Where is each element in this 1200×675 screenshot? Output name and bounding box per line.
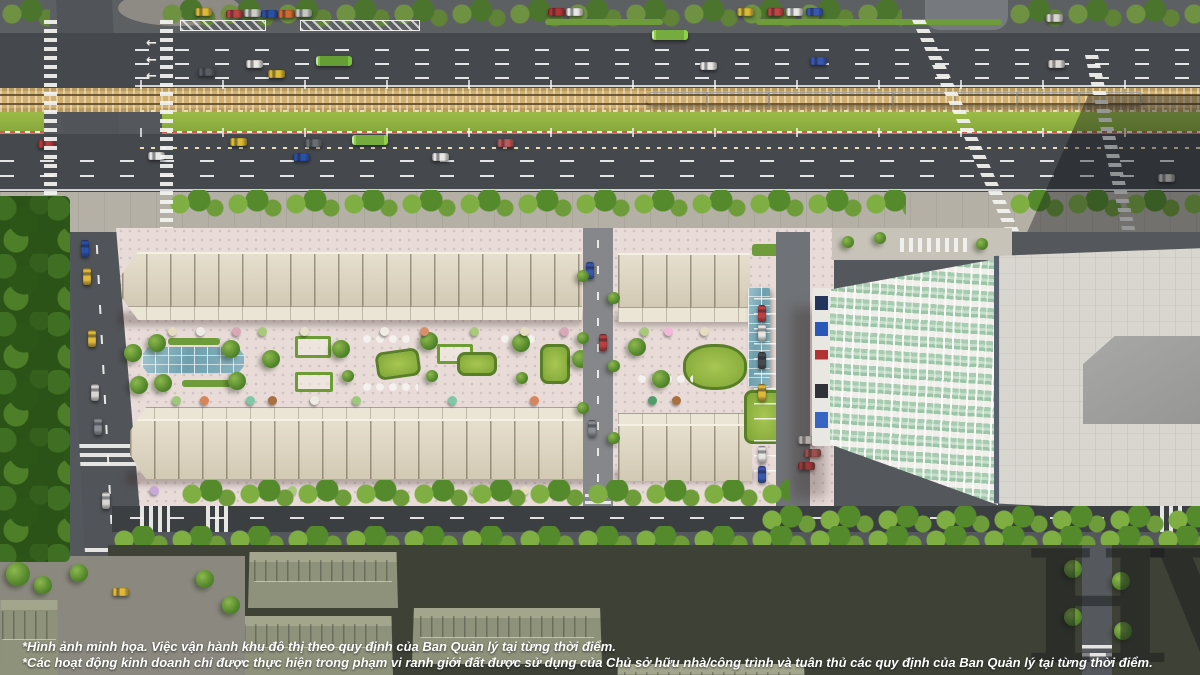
car: [566, 8, 583, 16]
tree: [608, 360, 620, 372]
lane-line: [0, 175, 1200, 177]
car: [599, 334, 607, 351]
car: [432, 153, 449, 161]
lane-line: [0, 160, 1200, 162]
car: [1048, 60, 1065, 68]
tree: [196, 570, 214, 588]
tree: [516, 372, 528, 384]
car: [293, 153, 310, 161]
umbrella: [420, 327, 429, 336]
storefront: [815, 384, 828, 398]
tree: [148, 334, 166, 352]
umbrella: [672, 396, 681, 405]
umbrella: [168, 327, 177, 336]
lane-line: [135, 77, 1200, 79]
car: [83, 268, 91, 285]
umbrella: [380, 327, 389, 336]
curb-dashes: [140, 147, 1200, 149]
umbrella: [664, 327, 673, 336]
umbrella: [470, 327, 479, 336]
car: [81, 240, 89, 257]
tree: [628, 338, 646, 356]
garden-bed: [295, 372, 333, 392]
train: [646, 92, 1142, 105]
car: [226, 10, 243, 18]
storefront: [815, 322, 828, 336]
crosswalk: [900, 238, 970, 252]
tree: [652, 370, 670, 388]
painted-island: [180, 20, 266, 31]
storefront: [815, 296, 828, 310]
car: [737, 8, 754, 16]
umbrella: [268, 396, 277, 405]
umbrella: [200, 396, 209, 405]
umbrella: [520, 327, 529, 336]
disclaimer-line-1: *Hình ảnh minh họa. Việc vận hành khu đô…: [22, 639, 616, 655]
boulevard-road-lower: [0, 134, 1200, 192]
tree: [6, 562, 30, 586]
tree: [332, 340, 350, 358]
car: [700, 62, 717, 70]
tree: [222, 596, 240, 614]
tree: [426, 370, 438, 382]
forest-band: [0, 196, 70, 562]
tree: [70, 564, 88, 582]
tower-glass-facade: [830, 256, 998, 514]
median-curb: [0, 131, 44, 133]
car: [91, 384, 99, 401]
tree: [512, 334, 530, 352]
car: [246, 60, 263, 68]
umbrella: [300, 327, 309, 336]
shophouse-roof: [130, 419, 586, 481]
car: [758, 305, 766, 322]
umbrella: [196, 327, 205, 336]
disclaimer-line-2: *Các hoạt động kinh doanh chỉ được thực …: [22, 655, 1153, 671]
car: [758, 384, 766, 401]
tower-podium: [812, 288, 832, 446]
lane-line: [597, 240, 599, 490]
tree: [342, 370, 354, 382]
bus: [652, 30, 688, 40]
hedge: [168, 338, 220, 345]
low-rise-block: [248, 552, 398, 608]
storefront: [815, 412, 828, 428]
car: [88, 330, 96, 347]
lane-line: [135, 49, 1200, 51]
tree-row-top: [0, 0, 50, 30]
umbrella: [700, 327, 709, 336]
umbrella-tables: [362, 382, 418, 392]
car: [758, 446, 766, 463]
car: [261, 10, 278, 18]
car: [767, 8, 784, 16]
car: [588, 420, 596, 437]
car: [230, 138, 247, 146]
car: [548, 8, 565, 16]
umbrella: [640, 327, 649, 336]
shophouse-roof: [618, 253, 750, 309]
shophouse-row: [618, 413, 752, 479]
car: [102, 492, 110, 509]
umbrella: [560, 327, 569, 336]
tree: [577, 270, 589, 282]
green-verge: [756, 19, 1002, 25]
tree: [228, 372, 246, 390]
umbrella: [246, 396, 255, 405]
road-arrow: ←: [146, 54, 157, 67]
car: [268, 70, 285, 78]
car: [244, 9, 261, 17]
car: [497, 139, 514, 147]
tree: [976, 238, 988, 250]
bus: [352, 135, 388, 145]
street-lights: [140, 80, 1200, 89]
umbrella: [310, 396, 319, 405]
car: [810, 57, 827, 65]
car: [198, 68, 215, 76]
shophouse-row: [618, 253, 750, 321]
tree: [608, 292, 620, 304]
car: [295, 9, 312, 17]
car: [305, 139, 322, 147]
shophouse-balcony-band: [618, 307, 750, 322]
tree: [577, 402, 589, 414]
car: [786, 8, 803, 16]
tree: [222, 340, 240, 358]
side-street-mouth: [925, 0, 1008, 30]
umbrella: [448, 396, 457, 405]
lane-line: [135, 63, 1200, 65]
umbrella: [232, 327, 241, 336]
shophouse-row: [130, 407, 586, 479]
shophouse-balcony-band: [122, 306, 582, 321]
tree: [842, 236, 854, 248]
tree: [262, 350, 280, 368]
tree: [124, 344, 142, 362]
tree: [608, 432, 620, 444]
umbrella: [530, 396, 539, 405]
storefront: [815, 350, 828, 366]
car: [195, 8, 212, 16]
tree: [34, 576, 52, 594]
bus: [316, 56, 352, 66]
umbrella: [172, 396, 181, 405]
garden-bed: [295, 336, 331, 358]
car: [1046, 14, 1063, 22]
crosswalk: [160, 20, 173, 234]
lawn: [457, 352, 497, 376]
aerial-render: ← ← ←: [0, 0, 1200, 675]
car: [94, 418, 102, 435]
shophouse-roof: [618, 424, 752, 481]
shophouse-row: [122, 252, 582, 320]
car: [758, 352, 766, 369]
lawn: [540, 344, 570, 384]
green-verge: [545, 19, 663, 25]
tower-roof: [994, 248, 1200, 514]
tree: [874, 232, 886, 244]
umbrella: [258, 327, 267, 336]
tree-row-sidewalk: [168, 190, 906, 230]
tower-roof-inset: [1083, 336, 1200, 424]
car: [758, 324, 766, 341]
umbrella: [352, 396, 361, 405]
umbrella-tables: [362, 334, 414, 344]
tree: [154, 374, 172, 392]
car: [278, 10, 295, 18]
umbrella: [648, 396, 657, 405]
tree: [577, 332, 589, 344]
tree-row-top: [1008, 0, 1200, 28]
painted-island: [300, 20, 420, 31]
car: [112, 588, 129, 596]
street-lights: [140, 128, 1200, 137]
shophouse-roof: [122, 252, 582, 308]
crosswalk: [79, 444, 136, 468]
road-arrow: ←: [146, 37, 157, 50]
tree: [130, 376, 148, 394]
umbrella: [150, 486, 159, 495]
car: [806, 8, 823, 16]
